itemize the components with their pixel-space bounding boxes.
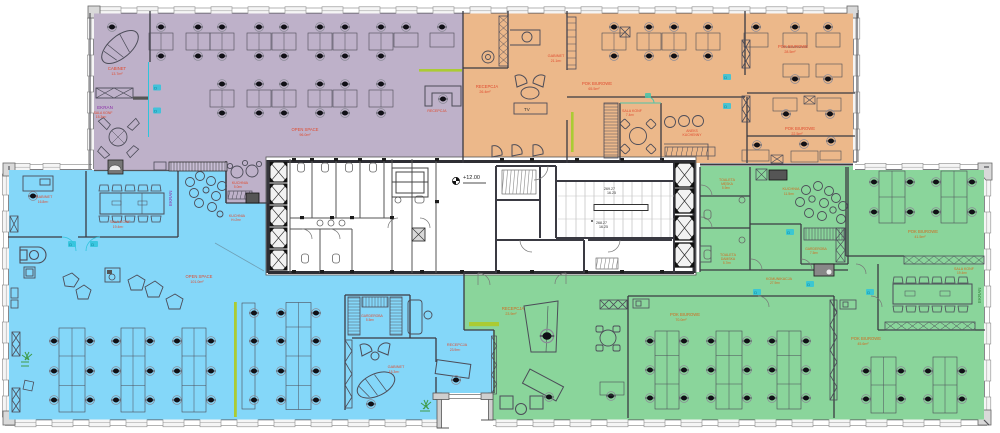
- svg-text:POK BIUROWE: POK BIUROWE: [582, 81, 612, 86]
- svg-text:SALA KONF: SALA KONF: [109, 220, 131, 224]
- svg-text:OPEN SPACE: OPEN SPACE: [292, 127, 319, 132]
- svg-text:GABINET: GABINET: [548, 54, 565, 58]
- svg-text:D: D: [724, 104, 727, 109]
- svg-text:45.6m²: 45.6m²: [857, 342, 869, 346]
- svg-text:D: D: [754, 290, 757, 295]
- svg-text:16.8m²: 16.8m²: [38, 200, 49, 204]
- svg-text:POK BIUROWE: POK BIUROWE: [851, 336, 881, 341]
- svg-text:28.5m²: 28.5m²: [784, 50, 796, 54]
- svg-text:5.5m²: 5.5m²: [366, 318, 374, 322]
- svg-text:11.5m²: 11.5m²: [784, 192, 795, 196]
- svg-text:96.0m²: 96.0m²: [299, 133, 311, 137]
- svg-text:5.9m²: 5.9m²: [722, 186, 730, 190]
- svg-text:CABINET: CABINET: [108, 66, 127, 71]
- svg-text:OPEN SPACE: OPEN SPACE: [186, 274, 213, 279]
- svg-text:D: D: [154, 85, 157, 90]
- svg-text:D: D: [724, 75, 727, 80]
- svg-text:D: D: [807, 282, 810, 287]
- svg-text:D: D: [91, 242, 94, 247]
- svg-text:70.0m²: 70.0m²: [675, 318, 687, 322]
- svg-text:POK BIUROWE: POK BIUROWE: [778, 44, 808, 49]
- svg-text:15.3m²: 15.3m²: [96, 115, 107, 119]
- svg-text:TV: TV: [524, 107, 530, 112]
- svg-text:RECEPCJA: RECEPCJA: [476, 84, 499, 89]
- svg-text:15.3m²: 15.3m²: [389, 370, 400, 374]
- svg-text:27.9m²: 27.9m²: [770, 281, 780, 285]
- svg-text:EKRAN: EKRAN: [977, 287, 982, 303]
- svg-text:65.5m²: 65.5m²: [588, 87, 600, 91]
- svg-text:13.7m²: 13.7m²: [111, 72, 123, 76]
- svg-text:5.0m²: 5.0m²: [234, 185, 242, 189]
- svg-text:RECEPCJA: RECEPCJA: [427, 109, 447, 113]
- svg-text:16.25: 16.25: [607, 191, 616, 195]
- svg-text:H=2m²: H=2m²: [231, 218, 241, 222]
- svg-text:RECEPCJA: RECEPCJA: [502, 306, 525, 311]
- svg-text:19.4m²: 19.4m²: [113, 225, 124, 229]
- svg-text:RECEPCJA: RECEPCJA: [447, 343, 468, 347]
- svg-text:5.7m²: 5.7m²: [723, 261, 731, 265]
- svg-text:16.25: 16.25: [599, 225, 608, 229]
- svg-text:23.9m²: 23.9m²: [505, 312, 517, 316]
- svg-text:GABINET: GABINET: [388, 365, 405, 369]
- svg-text:21.1m²: 21.1m²: [551, 59, 562, 63]
- svg-text:EKRAN: EKRAN: [168, 190, 173, 206]
- svg-text:D: D: [787, 230, 790, 235]
- svg-text:D: D: [154, 108, 157, 113]
- svg-text:41.5m²: 41.5m²: [914, 235, 926, 239]
- svg-text:POK BIUROWE: POK BIUROWE: [908, 229, 938, 234]
- svg-text:KUCHNIA: KUCHNIA: [782, 187, 800, 191]
- svg-text:D: D: [69, 242, 72, 247]
- svg-text:19.4m²: 19.4m²: [957, 271, 967, 275]
- svg-text:7.4m²: 7.4m²: [626, 113, 634, 117]
- svg-text:POK BIUROWE: POK BIUROWE: [670, 312, 700, 317]
- svg-text:EKRAN: EKRAN: [97, 105, 113, 110]
- svg-text:GABINET: GABINET: [36, 195, 53, 199]
- svg-text:101.0m²: 101.0m²: [190, 280, 204, 284]
- svg-text:POK BIUROWE: POK BIUROWE: [785, 126, 815, 131]
- svg-text:26.4m²: 26.4m²: [479, 90, 491, 94]
- svg-text:23.9m²: 23.9m²: [450, 348, 461, 352]
- svg-text:KUCHENNY: KUCHENNY: [682, 133, 702, 137]
- svg-text:+12.00: +12.00: [463, 175, 480, 181]
- svg-text:22.5m²: 22.5m²: [791, 132, 803, 136]
- svg-text:D: D: [867, 290, 870, 295]
- svg-text:7.5m²: 7.5m²: [810, 251, 818, 255]
